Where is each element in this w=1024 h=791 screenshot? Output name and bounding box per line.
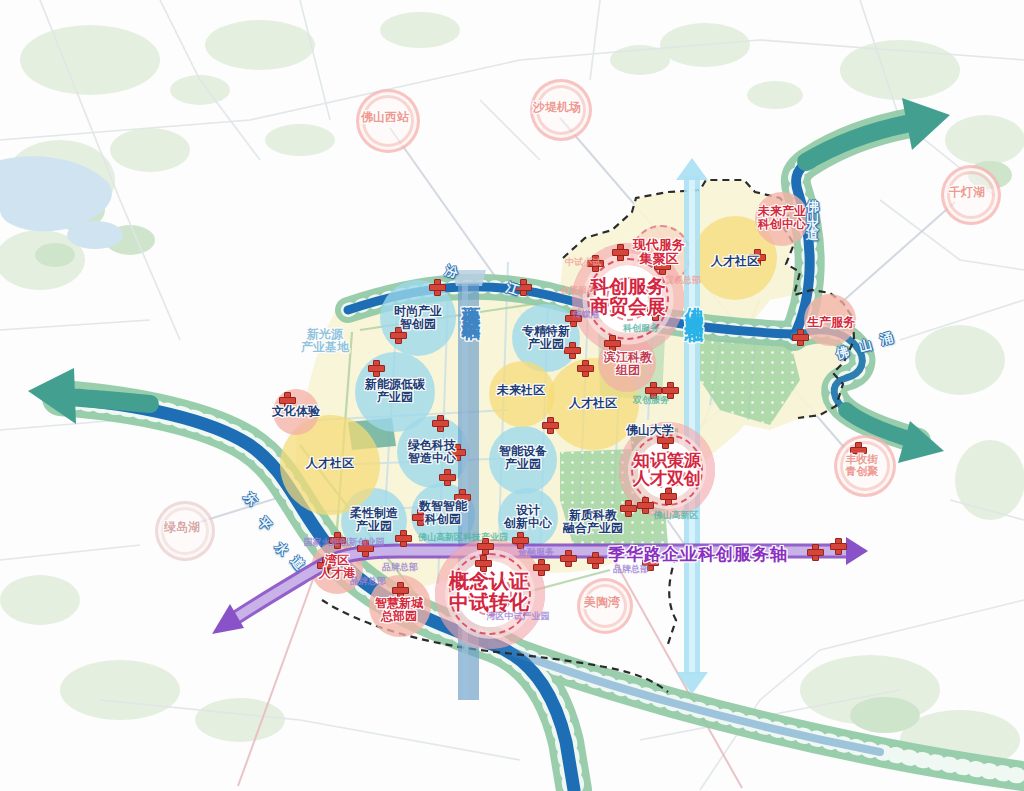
zone-weilai-chanye-circle [755,192,809,246]
red-cross-icon [807,544,824,561]
axis-foshan-avenue-label: 佛山大道人才创意轴 [682,292,708,310]
zone-lvse-circle [397,416,469,488]
planning-map: 禅西大道产业发展轴 佛山大道人才创意轴 季华路企业科创服务轴 科创服务 商贸会展… [0,0,1024,791]
zone-weilai-shequ-circle [489,361,555,427]
red-cross-icon [662,382,679,399]
node-zhishi-circle [619,422,715,518]
landmark-shadi-circle [530,79,592,141]
landmark-fengshou-circle [834,435,896,497]
river-dongping-label: 平 [253,513,275,535]
zone-shishang-circle [380,280,456,356]
river-dongping-label: 水 [270,538,292,560]
river-fenjiang-label: 汾 [443,261,461,282]
rivers [60,165,905,790]
landmark-qiandeng-circle [941,165,1001,225]
river-foshanyong-label: 涌 [878,329,895,350]
axis-jihua-label: 季华路企业科创服务轴 [608,543,788,566]
zone-wenhua-circle [273,389,319,435]
landmark-meitao-circle [577,578,633,634]
river-dongping-label: 道 [286,552,308,574]
red-cross-icon [645,382,662,399]
red-cross-icon [587,552,604,569]
axis-chanxi-label: 禅西大道产业发展轴 [459,290,485,308]
zone-zhineng-circle [489,426,557,494]
micro-pinpai1-label: 品牌总部 [382,563,418,572]
zone-xinzhi-label: 新质科教融合产业园 [563,509,623,535]
landmark-lvdao-circle [155,501,215,561]
node-gainian-circle [435,539,545,649]
river-foshanyong-label: 佛 [834,343,851,364]
flow-arrows [28,98,950,463]
zone-shengchan-circle [804,294,856,346]
lake-shapes [0,156,123,249]
zone-zhihui-circle [369,575,431,637]
landmark-foshanxi-circle [356,89,420,153]
landmark-xinguangyuan-label: 新光源产业基地 [301,328,349,354]
river-fenjiang-label: 江 [504,278,522,299]
red-cross-icon [560,550,577,567]
micro-pinpai3-label: 品牌总部 [613,565,649,574]
zone-sheji-circle [498,488,558,548]
red-cross-icon [642,554,659,571]
river-dongping-label: 东 [239,488,261,510]
red-cross-icon [515,279,532,296]
red-cross-icon [830,538,847,555]
river-foshanyong-label: 山 [857,336,874,357]
zone-wanqu-circle [311,542,363,594]
node-kechuang-circle [572,243,684,355]
zone-shuzhi-circle [411,483,475,547]
